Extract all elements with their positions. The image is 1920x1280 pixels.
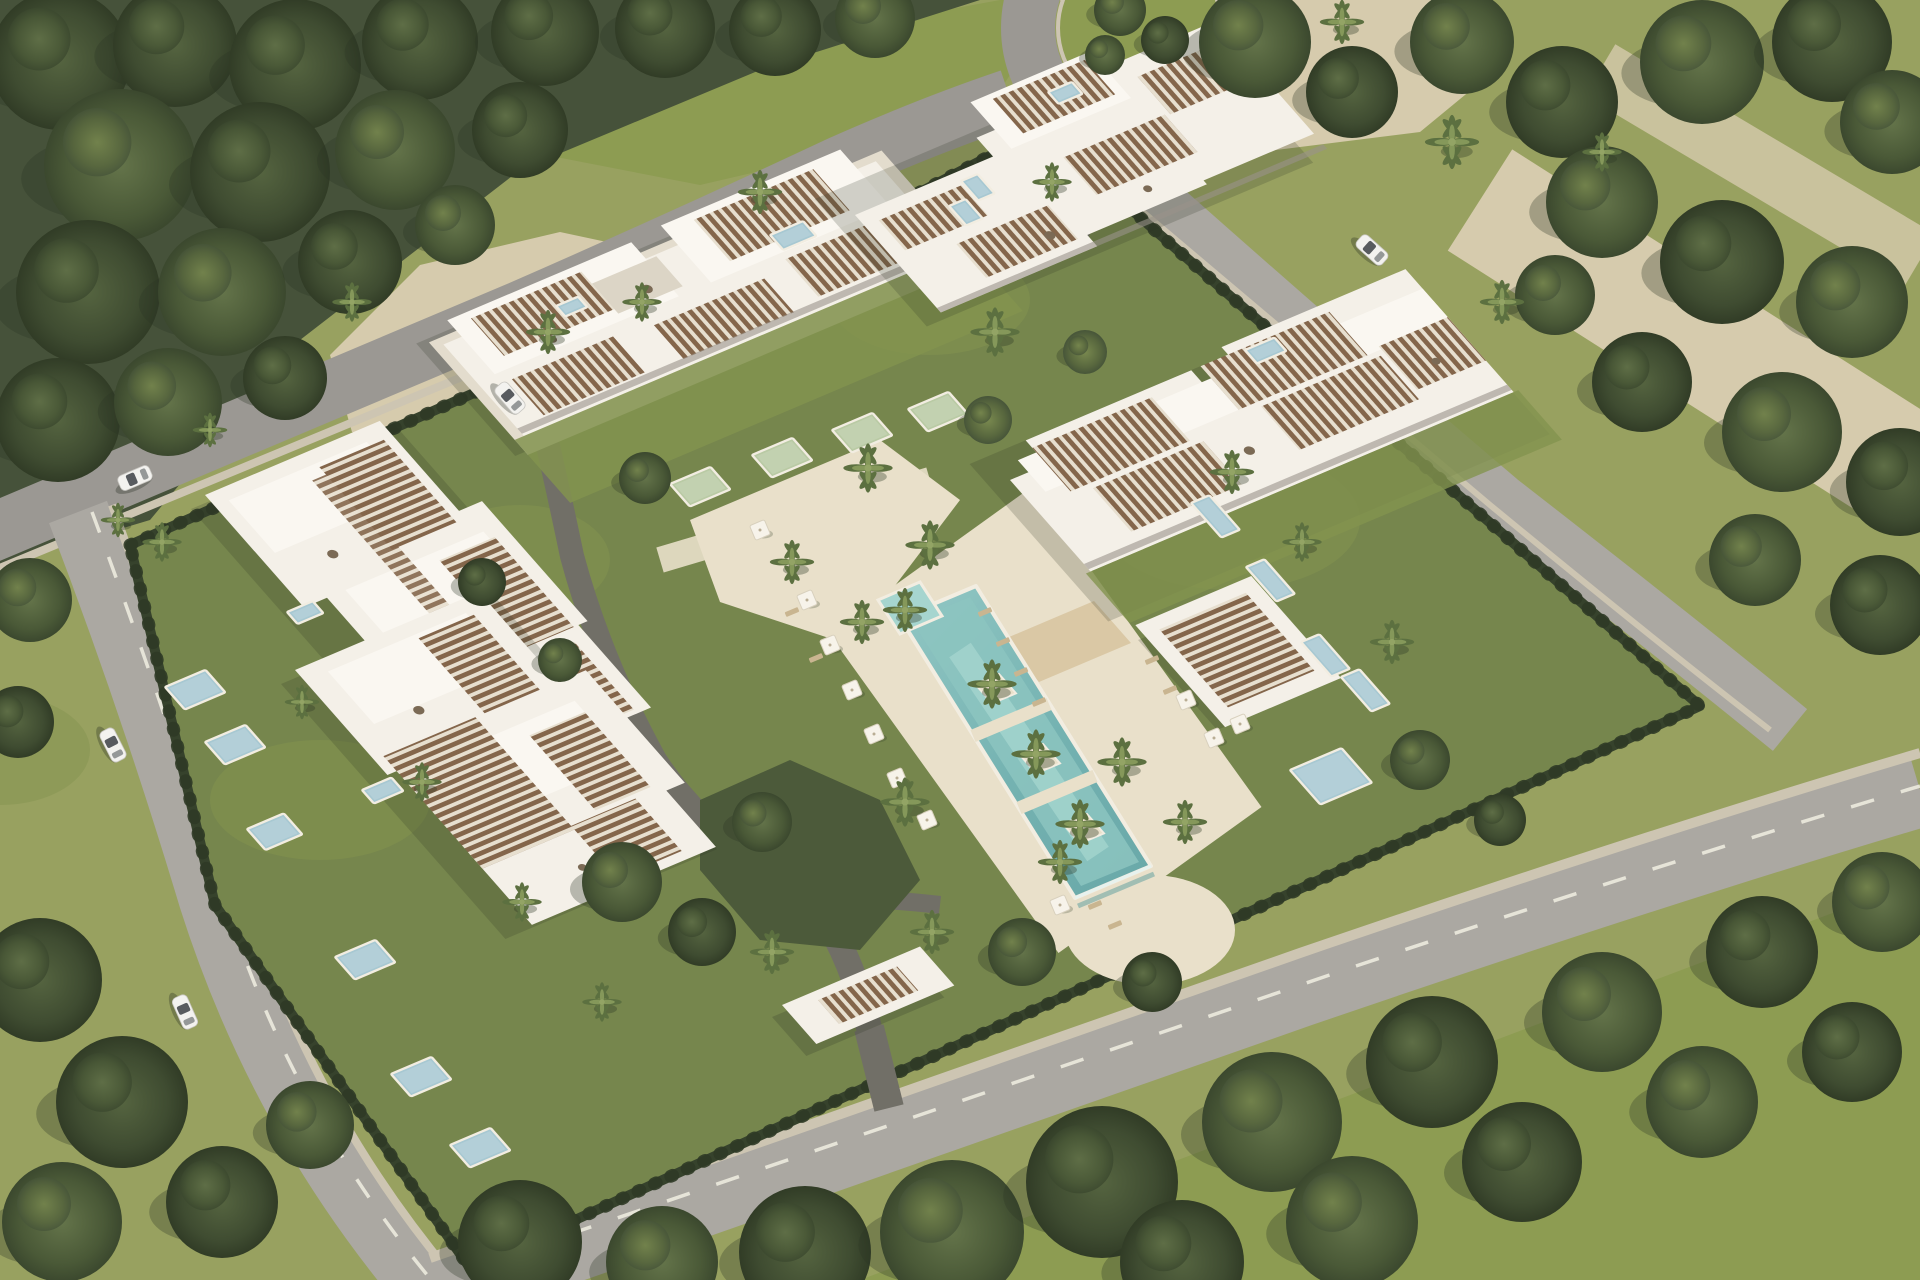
scene-canvas: [0, 0, 1920, 1280]
gate-apron: [869, 1028, 889, 1108]
aerial-render: [0, 0, 1920, 1280]
